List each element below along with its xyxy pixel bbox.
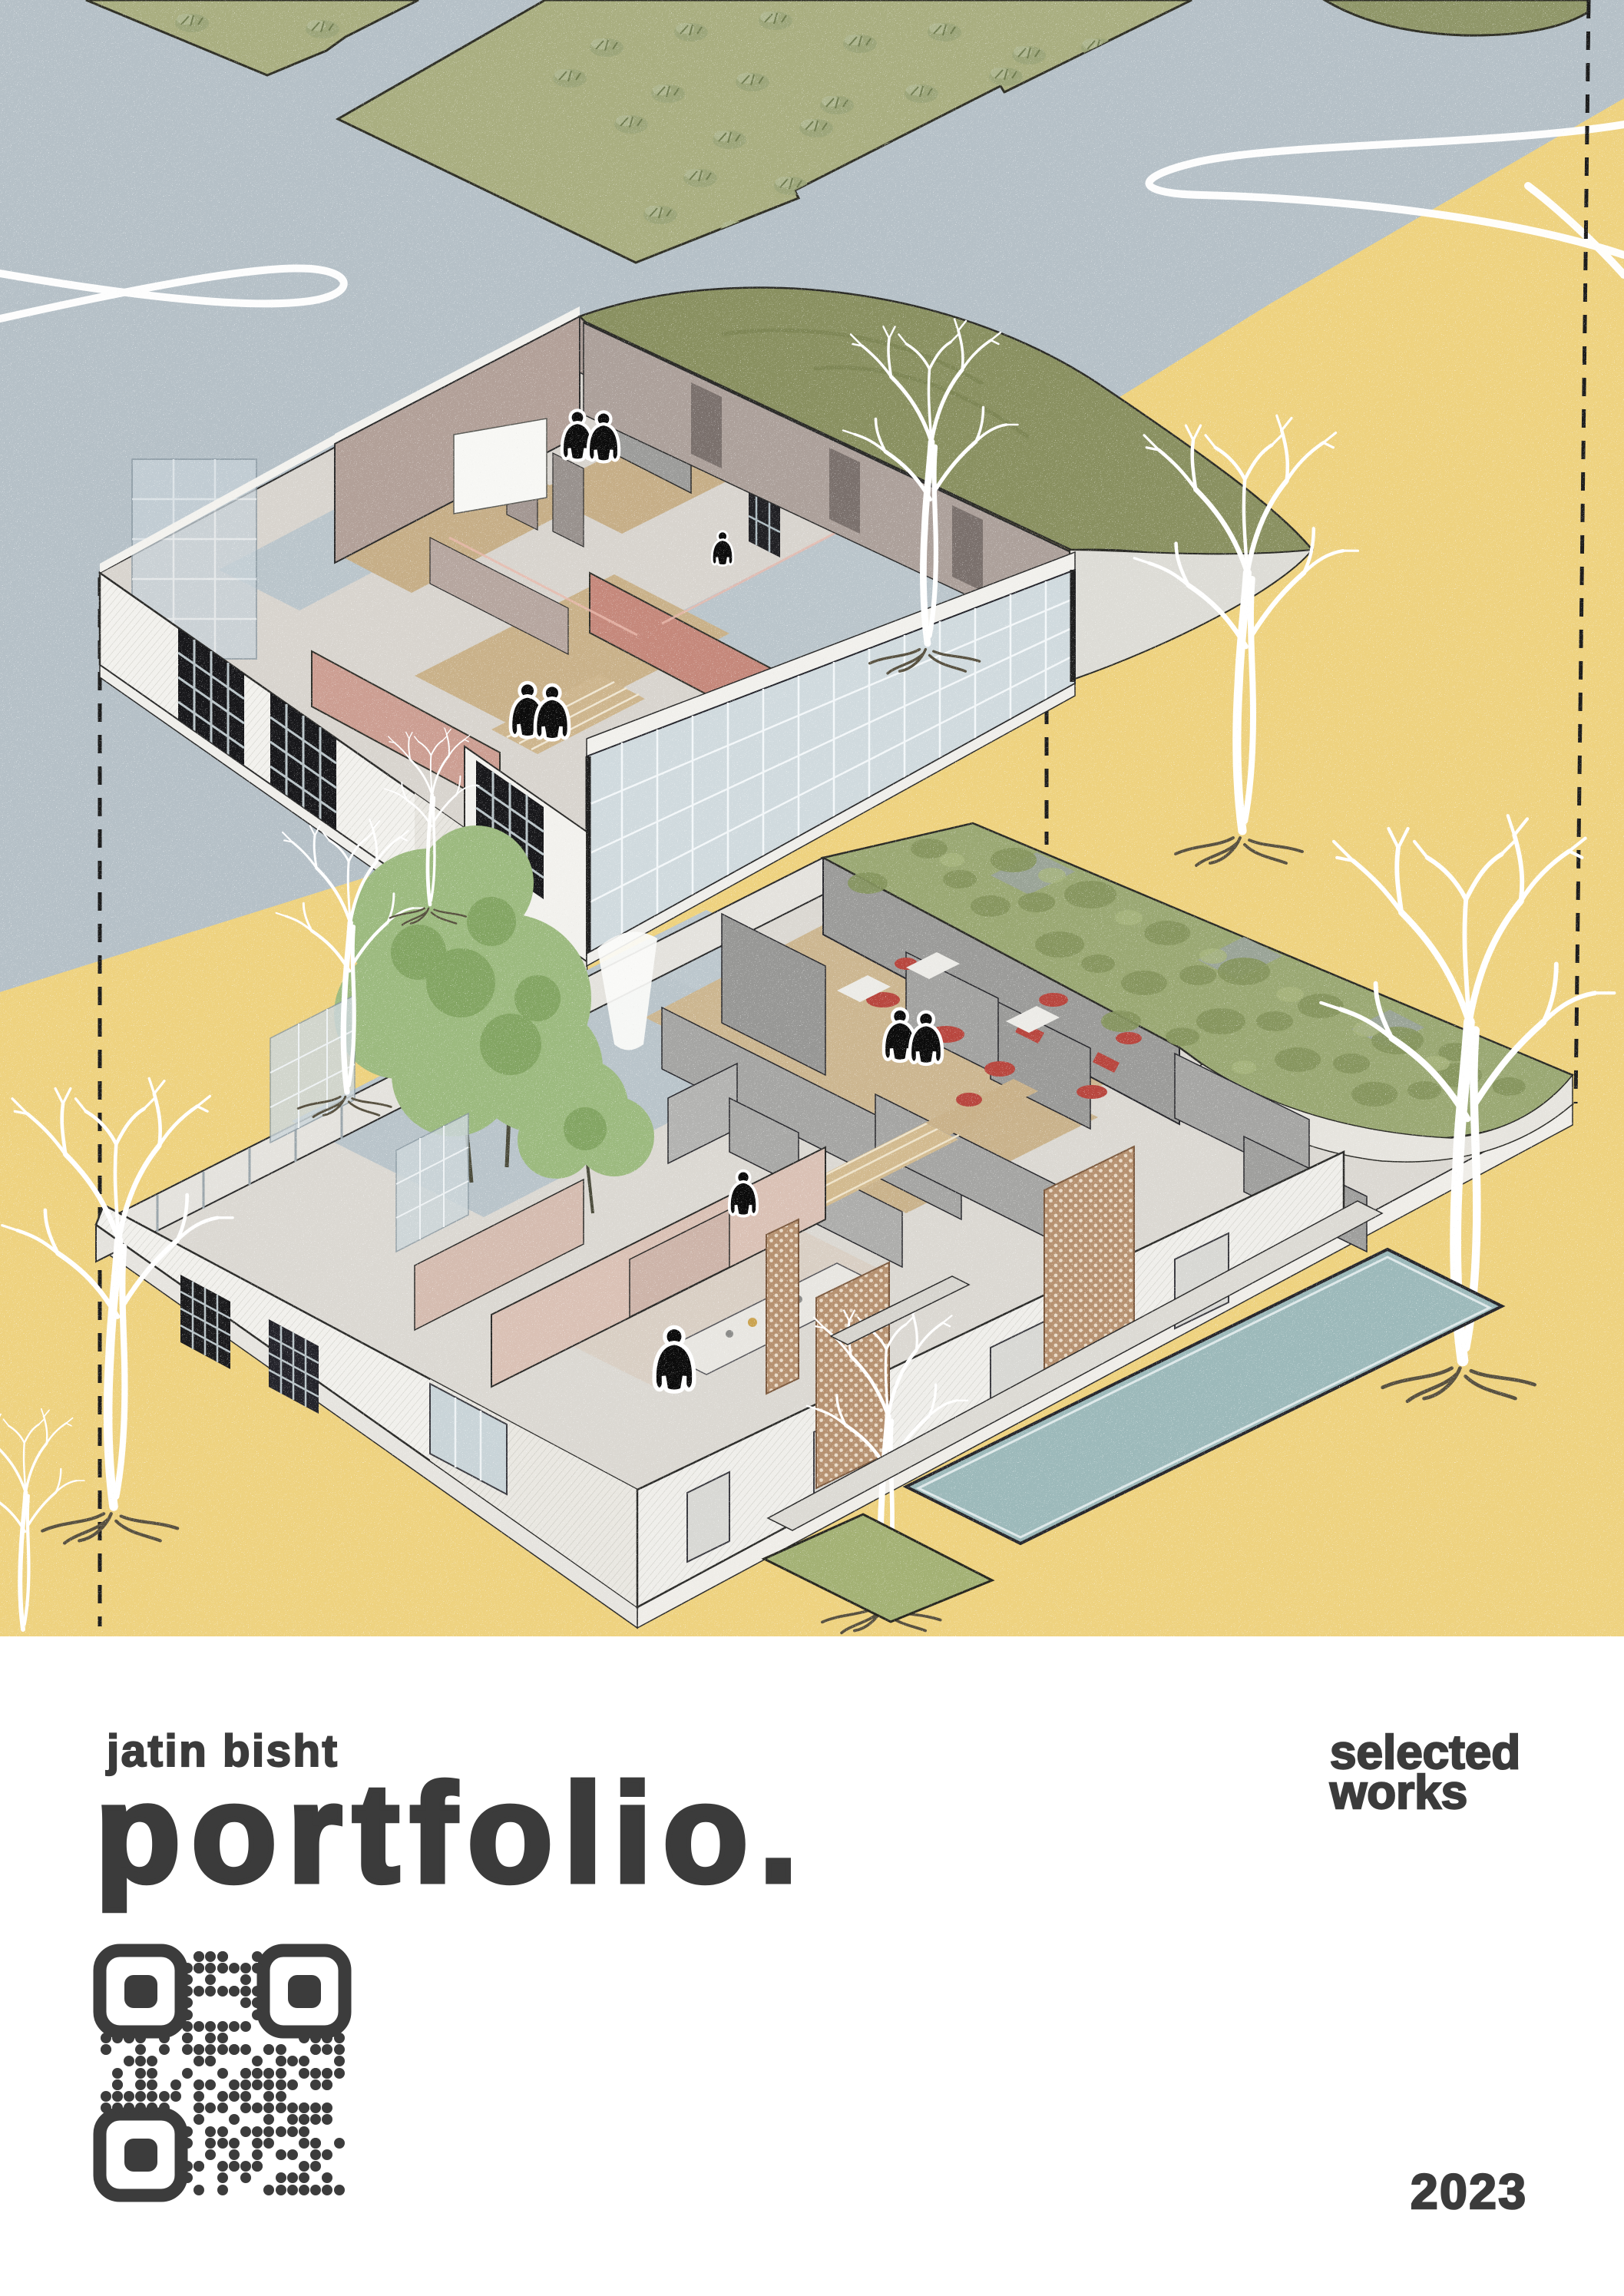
svg-text:portfolio.: portfolio. — [95, 1755, 798, 1911]
svg-text:2023: 2023 — [1411, 2164, 1526, 2219]
svg-text:works: works — [1329, 1766, 1467, 1819]
